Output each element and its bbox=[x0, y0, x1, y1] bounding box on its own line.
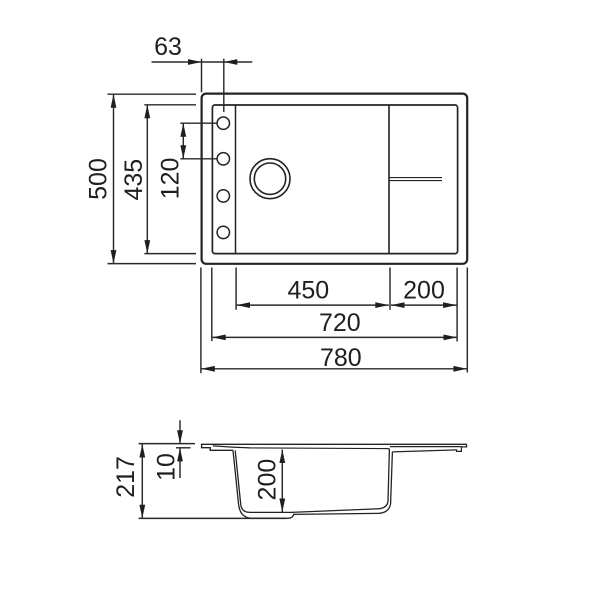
svg-text:780: 780 bbox=[320, 344, 362, 372]
svg-text:120: 120 bbox=[157, 158, 185, 200]
svg-text:200: 200 bbox=[403, 276, 445, 304]
svg-text:500: 500 bbox=[85, 158, 113, 200]
svg-text:450: 450 bbox=[287, 276, 329, 304]
svg-text:200: 200 bbox=[254, 459, 282, 501]
svg-text:217: 217 bbox=[112, 456, 140, 498]
svg-text:63: 63 bbox=[154, 33, 182, 61]
svg-text:10: 10 bbox=[152, 453, 180, 481]
svg-text:435: 435 bbox=[120, 159, 148, 201]
svg-text:720: 720 bbox=[319, 309, 361, 337]
